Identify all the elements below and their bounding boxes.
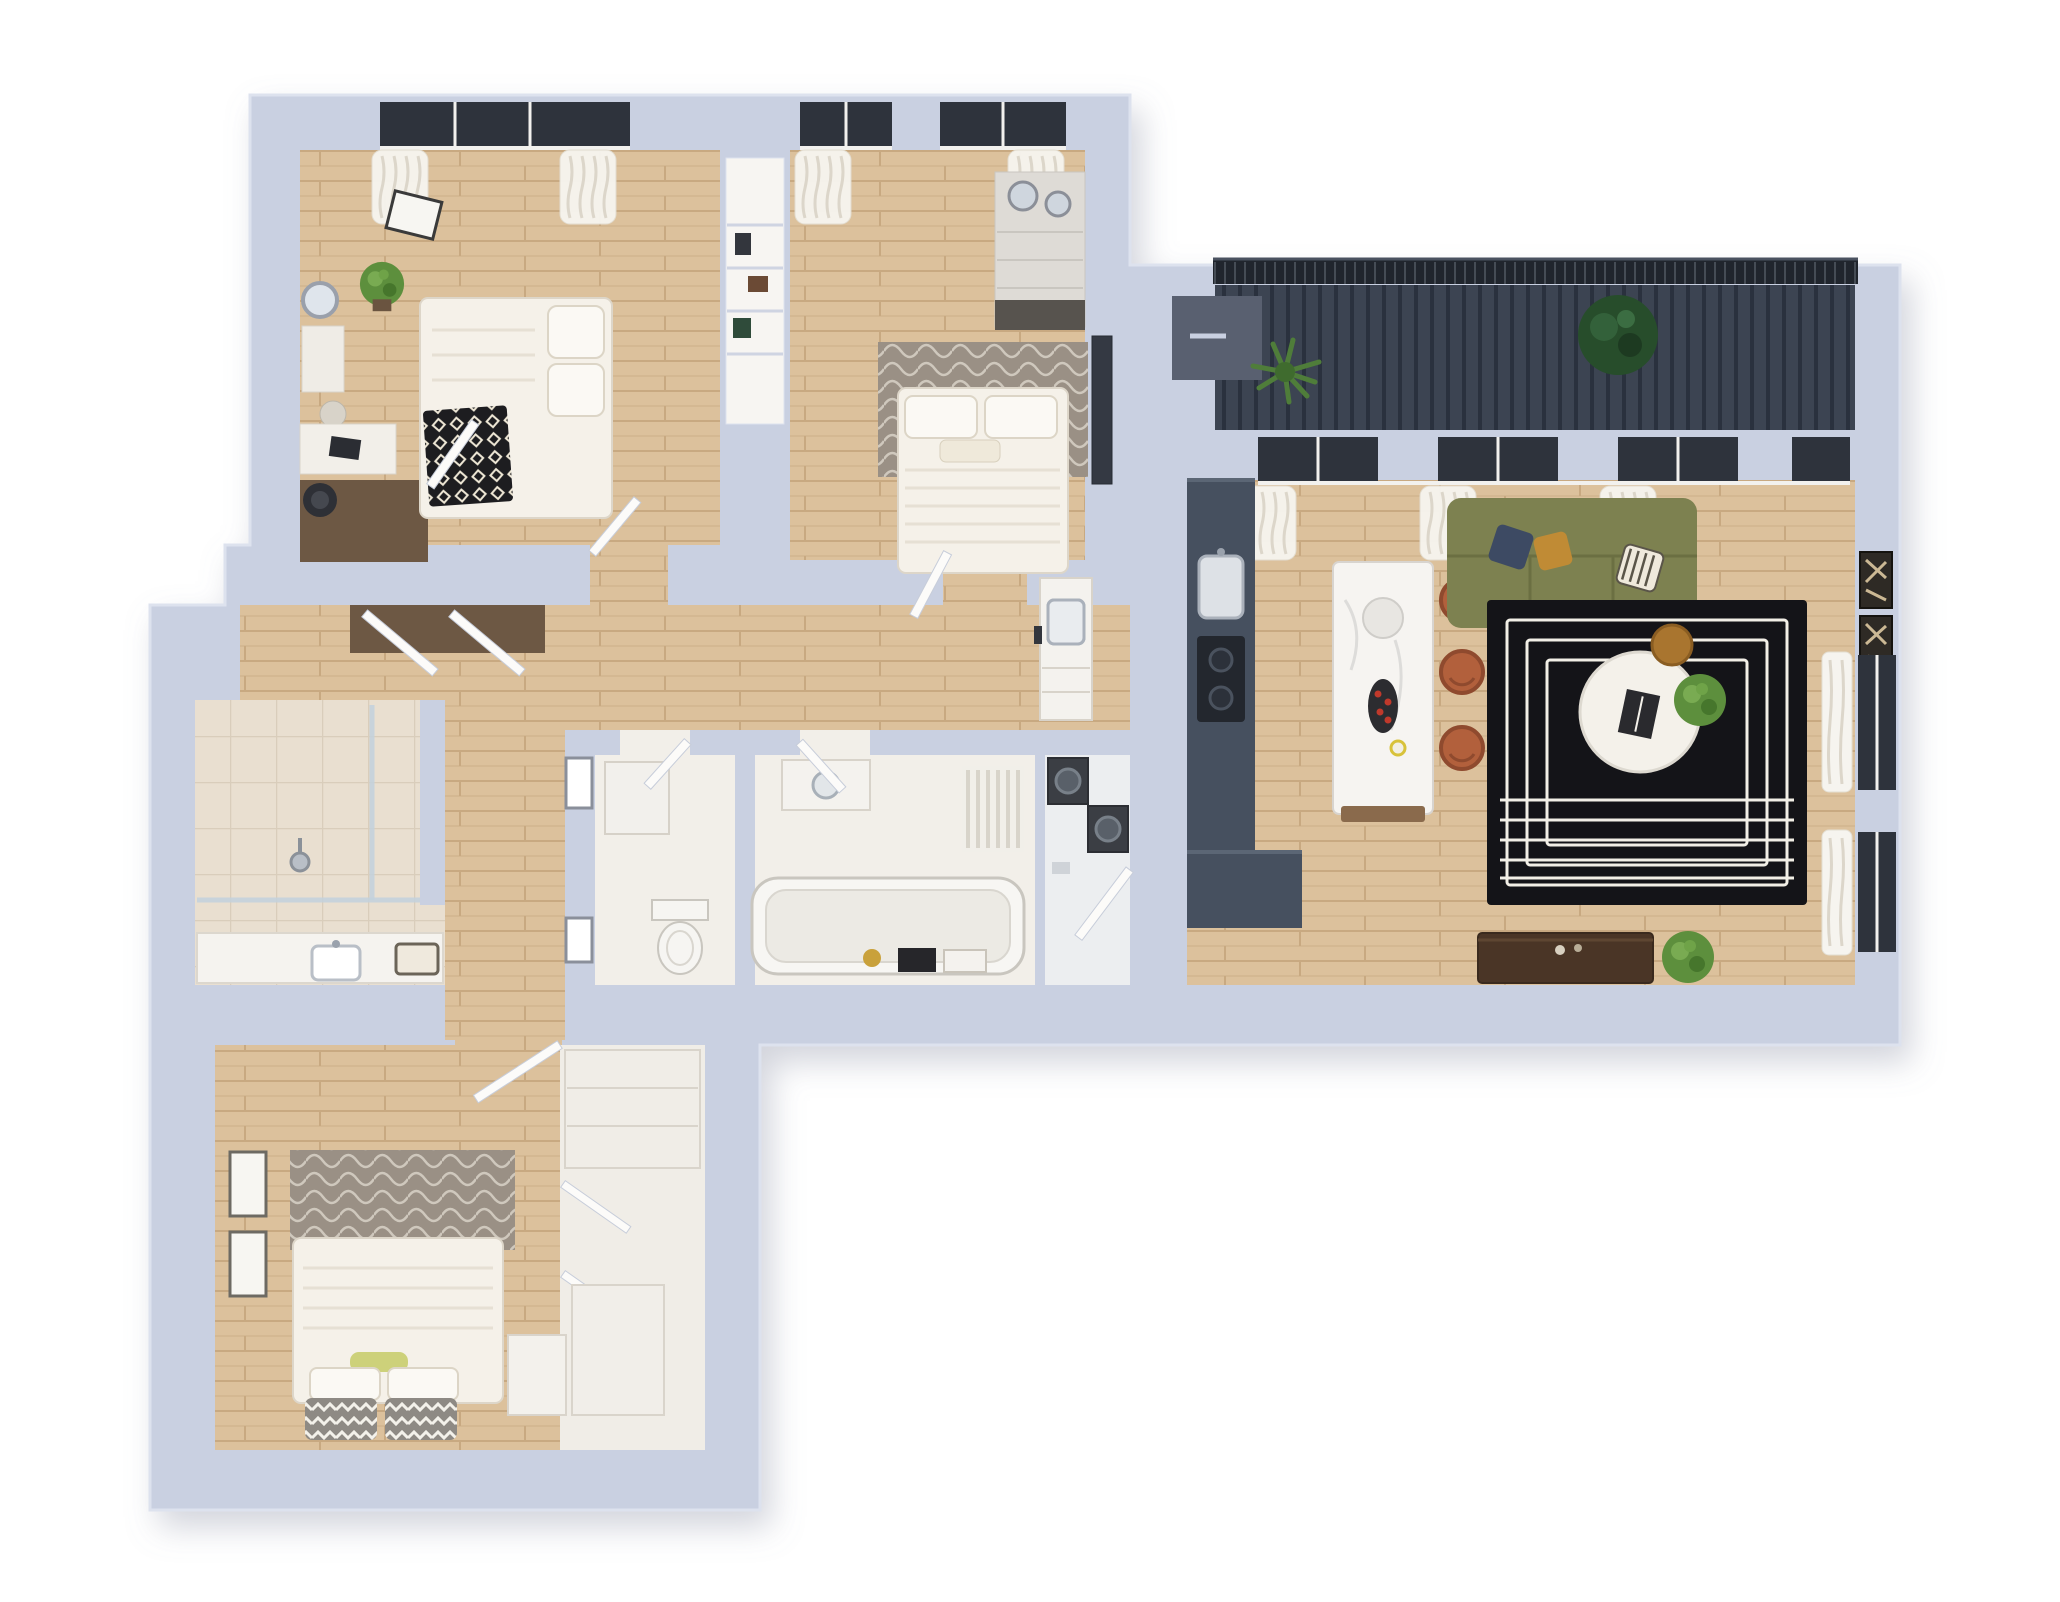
desk-chair-seat bbox=[311, 491, 329, 509]
wall-frame bbox=[230, 1152, 266, 1216]
hall-wall-frame bbox=[566, 758, 592, 808]
counter-tray bbox=[396, 944, 438, 974]
bedroom1-door-gap bbox=[590, 545, 668, 607]
vanity-corridor bbox=[197, 933, 443, 983]
round-mirror bbox=[1009, 182, 1037, 210]
lower-cabinet bbox=[572, 1285, 664, 1415]
balcony-railing bbox=[1213, 258, 1858, 284]
balcony-leafy-plant bbox=[1578, 295, 1658, 375]
fruit-tray bbox=[1368, 679, 1398, 733]
dresser-with-mirrors bbox=[995, 172, 1085, 330]
shelf-item bbox=[748, 276, 768, 292]
balcony bbox=[1172, 258, 1858, 430]
white-tray bbox=[944, 950, 986, 972]
chevron-pillow bbox=[385, 1398, 457, 1440]
nightstand bbox=[508, 1335, 566, 1415]
pillow bbox=[905, 396, 977, 438]
toilet-bowl bbox=[658, 922, 702, 974]
vanity-table bbox=[302, 326, 344, 392]
bed-double bbox=[898, 388, 1068, 573]
dryer-door bbox=[1096, 817, 1120, 841]
chevron-pillow bbox=[305, 1398, 377, 1440]
black-maze-rug bbox=[1487, 600, 1807, 905]
bed-double bbox=[420, 298, 612, 518]
bathroom-vanity-sink bbox=[1034, 578, 1092, 720]
curtain bbox=[795, 150, 851, 224]
counter-sink bbox=[312, 946, 360, 980]
laptop bbox=[329, 436, 361, 460]
detergent-box bbox=[1052, 862, 1070, 874]
pillow bbox=[548, 306, 604, 358]
shelf-item bbox=[735, 233, 751, 255]
wall-frame bbox=[230, 1232, 266, 1296]
bar-stool bbox=[1441, 651, 1483, 693]
plate bbox=[1363, 598, 1403, 638]
gold-bowl bbox=[863, 949, 881, 967]
pillow bbox=[548, 364, 604, 416]
shower-room-floor bbox=[195, 700, 420, 905]
faucet bbox=[332, 940, 340, 948]
accent-pillow bbox=[940, 440, 1000, 462]
toilet-tank bbox=[652, 900, 708, 920]
vanity-handle bbox=[1034, 626, 1042, 644]
curtain bbox=[560, 150, 616, 224]
between-closet-niche bbox=[726, 158, 784, 424]
bedroom3-door-gap bbox=[455, 985, 562, 1047]
floorplan-stage bbox=[0, 0, 2060, 1602]
floorplan-render bbox=[0, 0, 2060, 1602]
vanity-stool bbox=[320, 401, 346, 427]
balcony-deck bbox=[1215, 285, 1855, 430]
console-decor bbox=[1574, 944, 1582, 952]
island-base bbox=[1341, 806, 1425, 822]
dark-box bbox=[898, 948, 936, 972]
kitchen-island bbox=[1333, 562, 1433, 822]
console-plant bbox=[1662, 931, 1714, 983]
console-decor bbox=[1555, 945, 1565, 955]
window-curtain bbox=[1822, 830, 1852, 955]
counter-foot bbox=[1187, 850, 1302, 928]
burner bbox=[1210, 649, 1232, 671]
hall-wall-frame bbox=[566, 918, 592, 962]
kitchen-sink bbox=[1199, 556, 1243, 618]
white-pillow bbox=[388, 1368, 458, 1400]
washer-door bbox=[1056, 769, 1080, 793]
white-pillow bbox=[310, 1368, 380, 1400]
flower bbox=[1391, 741, 1405, 755]
fruit bbox=[1375, 691, 1382, 698]
fruit bbox=[1385, 717, 1392, 724]
tv-console bbox=[1478, 933, 1653, 983]
radiator bbox=[962, 766, 1024, 852]
wavy-rug-pattern bbox=[290, 1150, 515, 1250]
burner bbox=[1210, 687, 1232, 709]
shower-head bbox=[291, 853, 309, 871]
fruit bbox=[1377, 709, 1384, 716]
fruit bbox=[1385, 699, 1392, 706]
window-curtain bbox=[1822, 652, 1852, 792]
window-glass bbox=[380, 102, 630, 146]
diamond-throw bbox=[423, 405, 513, 507]
side-table bbox=[1652, 625, 1692, 665]
pillow bbox=[985, 396, 1057, 438]
kitchen-faucet bbox=[1217, 548, 1225, 556]
shelf-item bbox=[733, 318, 751, 338]
tall-mirror bbox=[1092, 336, 1112, 484]
vanity-mirror bbox=[303, 283, 337, 317]
living-plant bbox=[1674, 674, 1726, 726]
bar-stool bbox=[1441, 727, 1483, 769]
round-mirror bbox=[1046, 192, 1070, 216]
